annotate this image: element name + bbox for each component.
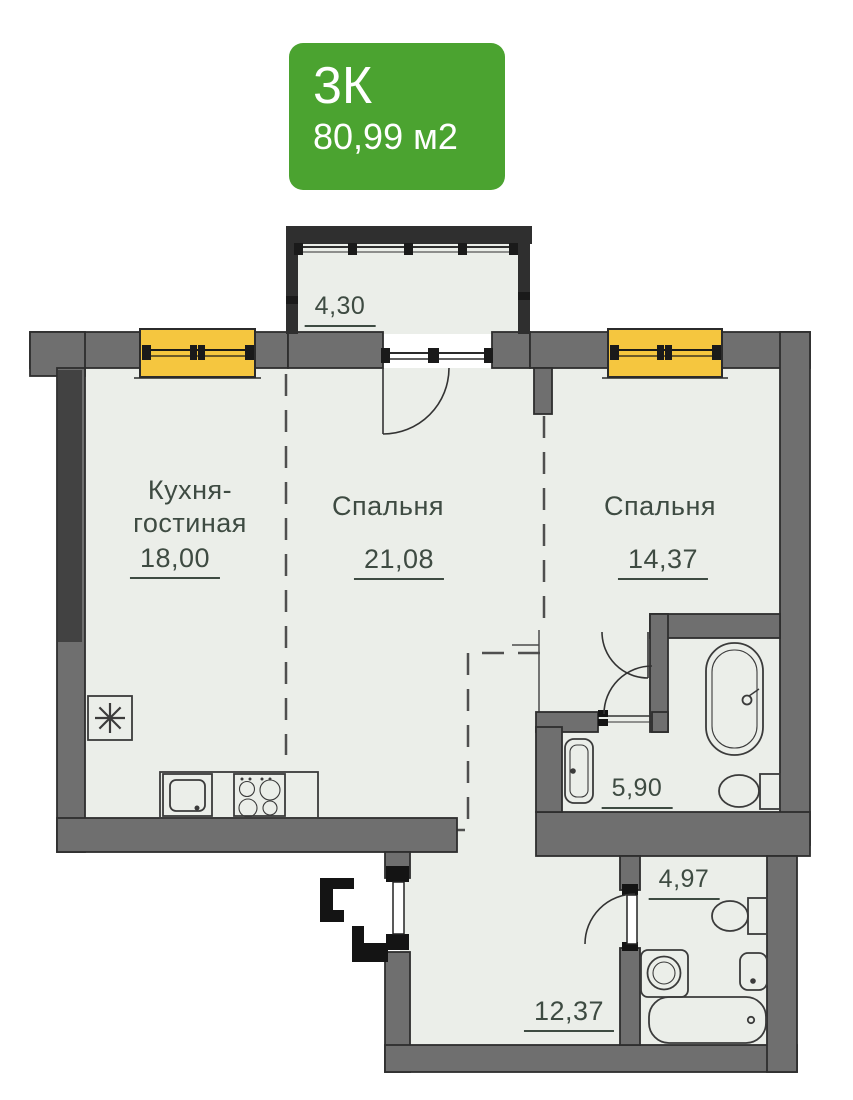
kitchen-living-name: Кухня- гостиная xyxy=(133,474,247,540)
kitchen-living-name-line2: гостиная xyxy=(133,507,247,540)
bathroom2-area-label: 4,97 xyxy=(649,864,720,900)
kitchen-living-area-label: 18,00 xyxy=(130,543,220,579)
bedroom2-area-label: 14,37 xyxy=(618,544,708,580)
bedroom2-name: Спальня xyxy=(604,490,716,523)
floor-plan: 3К 80,99 м2 4,30 Кухня- гостиная 18,00 С… xyxy=(0,0,853,1100)
floor-main xyxy=(85,368,780,820)
entrance-door xyxy=(320,866,409,962)
window-left xyxy=(134,329,261,378)
hallway-area-label: 12,37 xyxy=(524,996,614,1032)
badge-area-label: 80,99 м2 xyxy=(313,117,505,157)
bedroom1-name: Спальня xyxy=(332,490,444,523)
area-badge: 3К 80,99 м2 xyxy=(289,43,505,190)
left-wall-dark-band xyxy=(58,370,82,642)
badge-rooms-label: 3К xyxy=(313,57,505,115)
window-right xyxy=(602,329,728,378)
kitchen-living-name-line1: Кухня- xyxy=(133,474,247,507)
bedroom1-area-label: 21,08 xyxy=(354,544,444,580)
balcony-area-label: 4,30 xyxy=(305,291,376,327)
bathroom1-area-label: 5,90 xyxy=(602,773,673,809)
